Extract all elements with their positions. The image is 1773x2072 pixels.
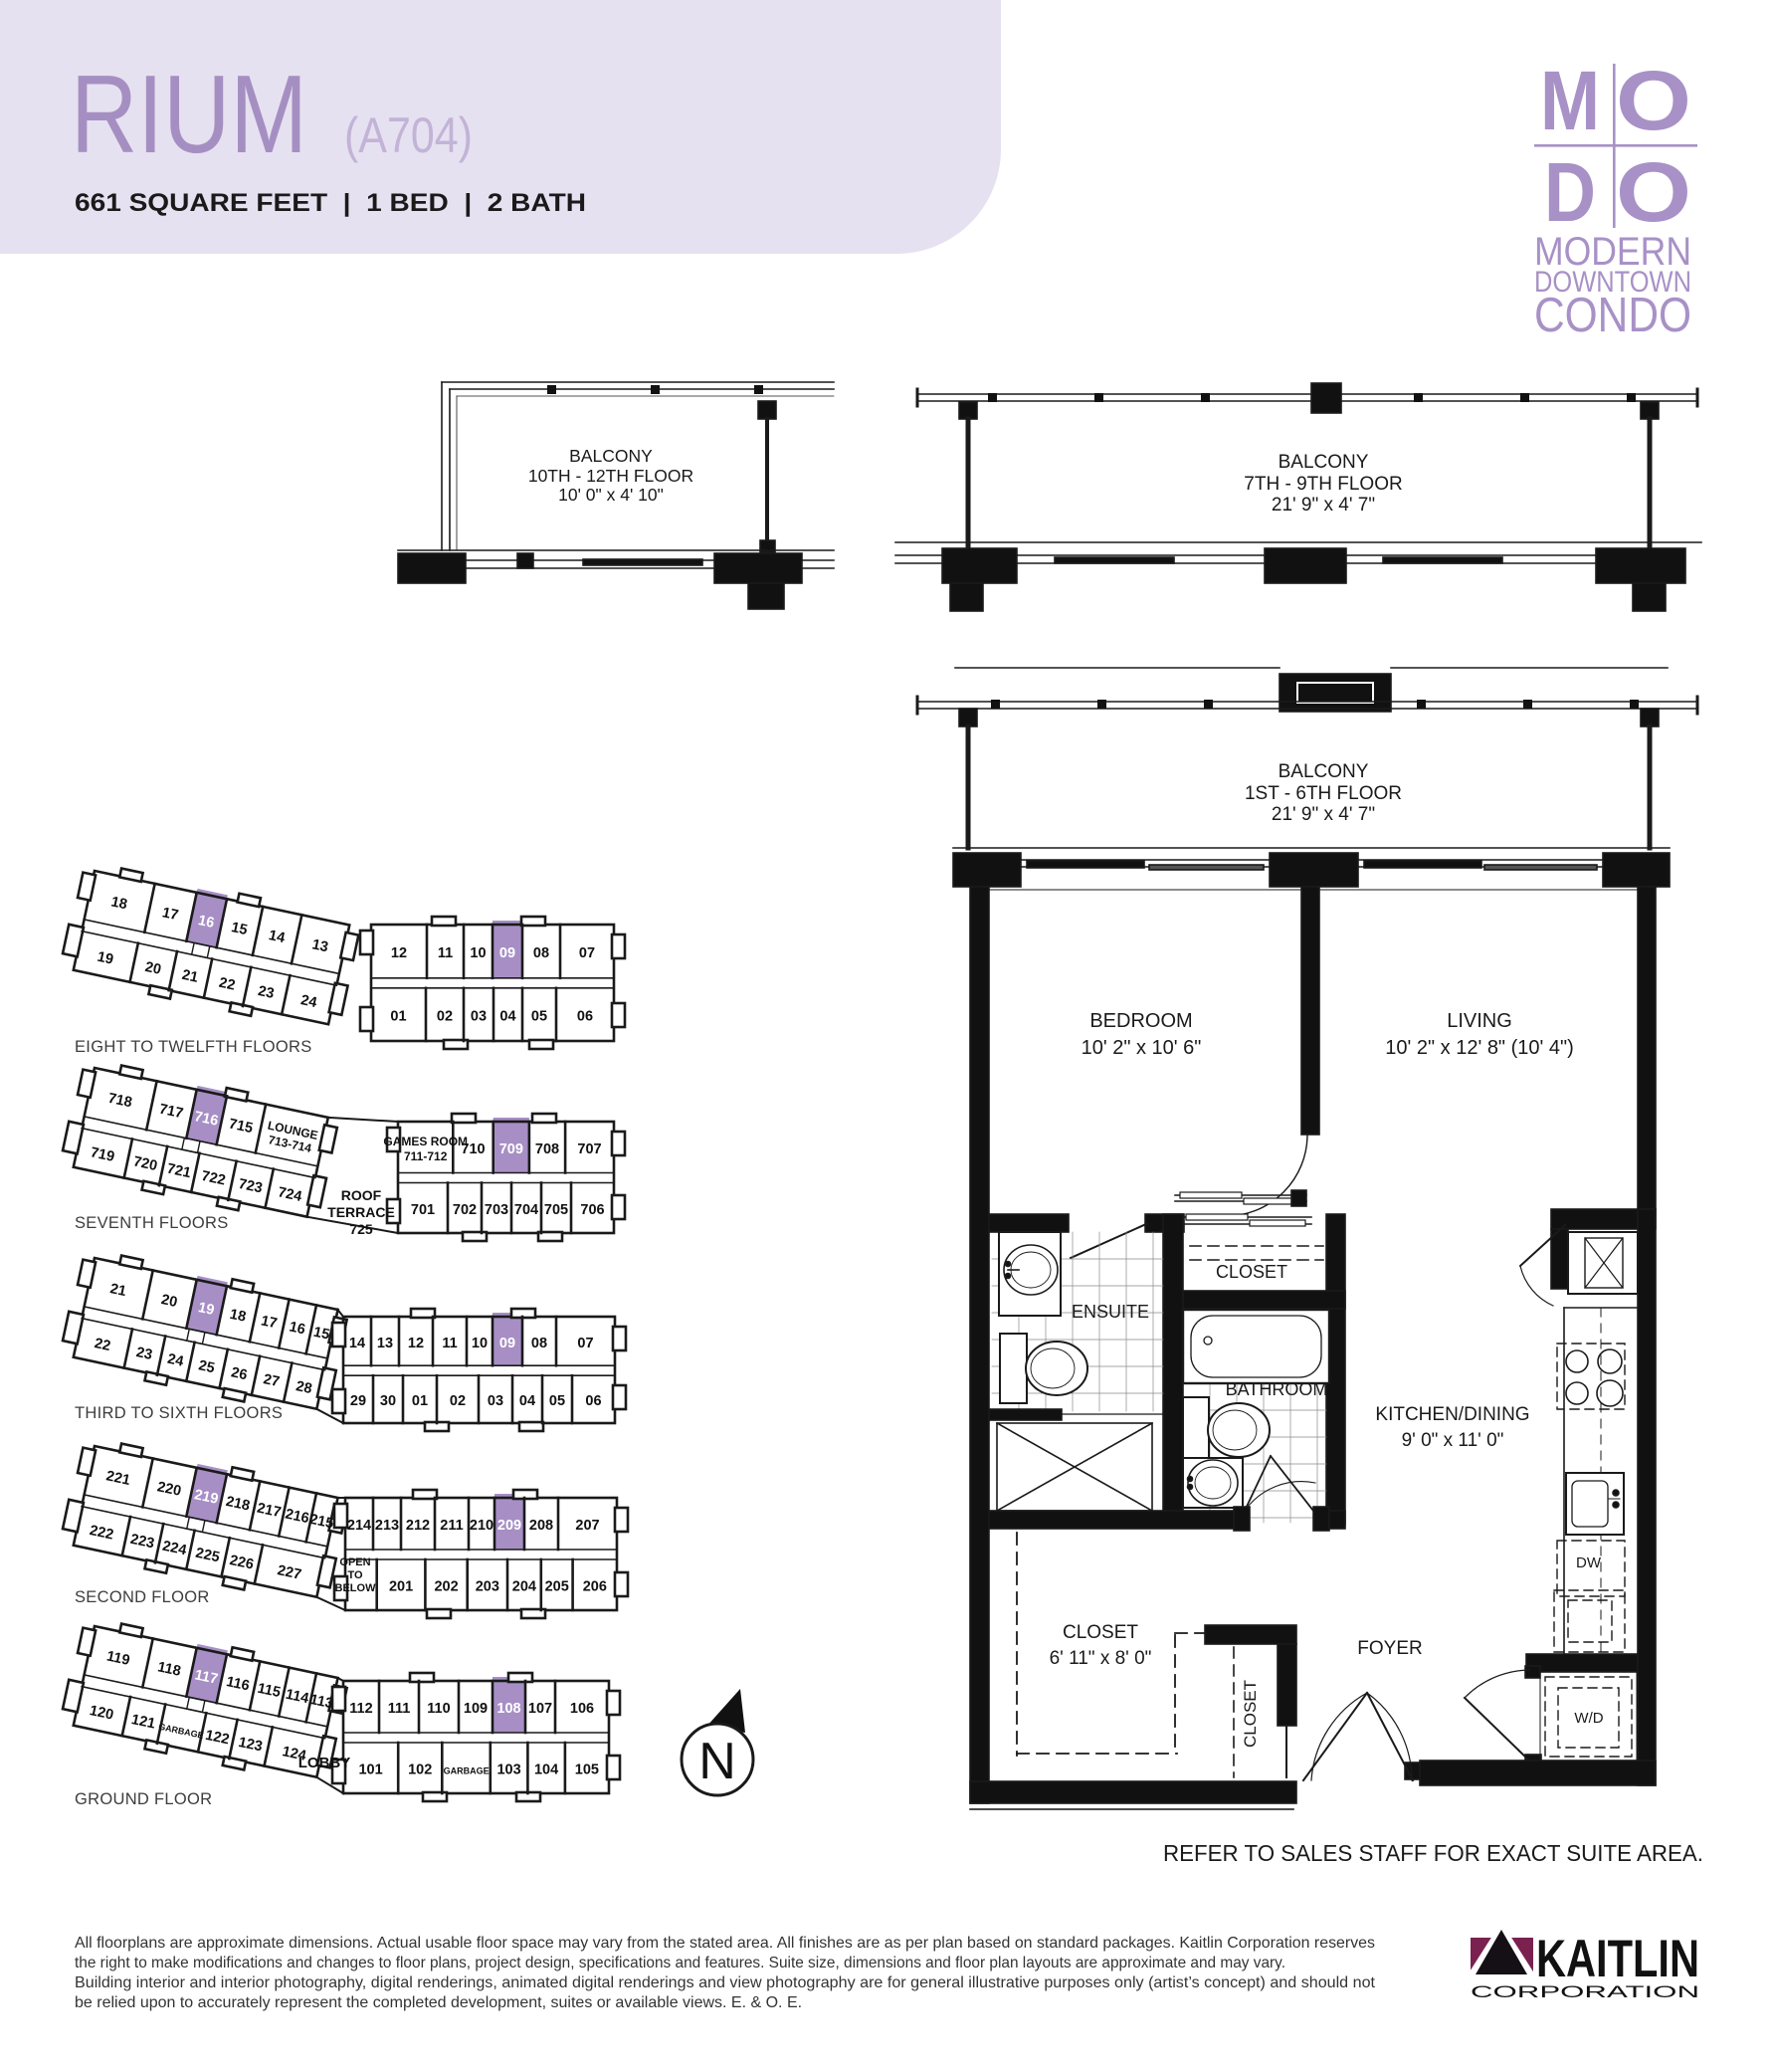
svg-text:722: 722 — [200, 1168, 227, 1189]
svg-text:213: 213 — [375, 1518, 399, 1534]
svg-text:661 SQUARE FEET | 1 BED |: 661 SQUARE FEET | 1 BED | 2 BATH — [75, 189, 586, 217]
svg-text:207: 207 — [575, 1518, 599, 1534]
svg-text:13: 13 — [377, 1336, 393, 1351]
svg-text:101: 101 — [358, 1762, 382, 1778]
svg-text:FOYER: FOYER — [1357, 1638, 1422, 1659]
svg-text:221: 221 — [104, 1468, 131, 1489]
svg-text:21: 21 — [108, 1281, 127, 1300]
svg-text:724: 724 — [277, 1184, 303, 1205]
svg-text:BALCONY: BALCONY — [1279, 452, 1369, 473]
svg-text:BATHROOM: BATHROOM — [1226, 1379, 1328, 1399]
svg-text:10' 2" x 12' 8" (10' 4"): 10' 2" x 12' 8" (10' 4") — [1385, 1037, 1574, 1059]
svg-text:BELOW: BELOW — [335, 1582, 377, 1594]
svg-text:206: 206 — [583, 1579, 607, 1595]
svg-text:201: 201 — [389, 1579, 413, 1595]
svg-text:210: 210 — [470, 1518, 493, 1534]
svg-text:BEDROOM: BEDROOM — [1089, 1010, 1192, 1032]
svg-text:01: 01 — [390, 1008, 406, 1024]
svg-text:704: 704 — [514, 1202, 538, 1218]
svg-text:28: 28 — [295, 1378, 313, 1397]
svg-text:W/D: W/D — [1574, 1710, 1603, 1727]
svg-text:717: 717 — [158, 1102, 185, 1123]
svg-text:27: 27 — [262, 1371, 281, 1390]
svg-text:08: 08 — [531, 1336, 547, 1351]
svg-text:12: 12 — [391, 945, 407, 961]
svg-text:220: 220 — [156, 1479, 183, 1500]
svg-text:TERRACE: TERRACE — [327, 1204, 395, 1220]
svg-text:16: 16 — [197, 913, 216, 932]
svg-text:DW: DW — [1576, 1554, 1602, 1571]
svg-text:216: 216 — [284, 1507, 310, 1528]
svg-text:725: 725 — [349, 1221, 373, 1237]
svg-text:SECOND FLOOR: SECOND FLOOR — [75, 1588, 210, 1606]
svg-text:29: 29 — [350, 1393, 366, 1409]
svg-text:05: 05 — [531, 1008, 547, 1024]
svg-text:08: 08 — [533, 945, 549, 961]
svg-text:CORPORATION: CORPORATION — [1471, 1982, 1699, 2001]
svg-text:702: 702 — [453, 1202, 477, 1218]
svg-text:RIUM: RIUM — [71, 53, 307, 176]
svg-text:202: 202 — [434, 1579, 458, 1595]
svg-text:204: 204 — [512, 1579, 536, 1595]
svg-text:04: 04 — [499, 1008, 515, 1024]
svg-text:20: 20 — [160, 1292, 179, 1311]
svg-text:23: 23 — [134, 1345, 153, 1363]
svg-text:ROOF: ROOF — [341, 1187, 382, 1203]
svg-text:10' 2" x 10' 6": 10' 2" x 10' 6" — [1082, 1037, 1202, 1059]
svg-text:EIGHT TO TWELFTH FLOORS: EIGHT TO TWELFTH FLOORS — [75, 1038, 312, 1056]
svg-text:21: 21 — [180, 967, 199, 986]
svg-text:11: 11 — [442, 1336, 457, 1351]
svg-text:217: 217 — [256, 1501, 283, 1522]
svg-text:105: 105 — [575, 1762, 599, 1778]
svg-text:OPEN: OPEN — [339, 1556, 370, 1568]
svg-text:719: 719 — [89, 1144, 115, 1165]
svg-text:M: M — [1540, 54, 1600, 147]
svg-text:218: 218 — [225, 1494, 252, 1515]
svg-text:711-712: 711-712 — [404, 1149, 448, 1163]
svg-text:17: 17 — [161, 905, 180, 924]
svg-text:10' 0" x 4' 10": 10' 0" x 4' 10" — [558, 485, 664, 505]
svg-text:LIVING: LIVING — [1447, 1010, 1512, 1032]
svg-text:22: 22 — [93, 1336, 111, 1354]
svg-text:226: 226 — [228, 1553, 255, 1573]
svg-text:O: O — [1616, 145, 1691, 239]
svg-text:KITCHEN/DINING: KITCHEN/DINING — [1375, 1404, 1529, 1425]
svg-text:26: 26 — [230, 1364, 249, 1383]
svg-text:205: 205 — [545, 1579, 569, 1595]
svg-text:209: 209 — [497, 1518, 521, 1534]
svg-text:723: 723 — [237, 1176, 264, 1197]
svg-text:18: 18 — [228, 1307, 247, 1326]
svg-text:D: D — [1544, 145, 1596, 239]
svg-text:109: 109 — [464, 1701, 488, 1717]
svg-text:113: 113 — [308, 1692, 334, 1713]
svg-text:715: 715 — [227, 1117, 254, 1138]
svg-text:03: 03 — [471, 1008, 487, 1024]
svg-text:KAITLIN: KAITLIN — [1536, 1930, 1699, 1988]
svg-text:7TH - 9TH FLOOR: 7TH - 9TH FLOOR — [1244, 474, 1402, 495]
svg-text:1ST - 6TH FLOOR: 1ST - 6TH FLOOR — [1245, 783, 1402, 804]
svg-text:103: 103 — [496, 1762, 520, 1778]
svg-text:208: 208 — [529, 1518, 553, 1534]
svg-text:703: 703 — [485, 1202, 508, 1218]
svg-text:21' 9" x 4' 7": 21' 9" x 4' 7" — [1272, 495, 1375, 516]
svg-text:17: 17 — [260, 1313, 279, 1332]
svg-text:GAMES ROOM: GAMES ROOM — [383, 1135, 468, 1148]
svg-text:214: 214 — [347, 1518, 371, 1534]
svg-text:19: 19 — [197, 1300, 216, 1319]
svg-text:07: 07 — [577, 1336, 593, 1351]
svg-text:212: 212 — [406, 1518, 430, 1534]
svg-text:09: 09 — [499, 945, 515, 961]
svg-text:04: 04 — [519, 1393, 535, 1409]
svg-text:708: 708 — [535, 1141, 559, 1157]
svg-text:SEVENTH FLOORS: SEVENTH FLOORS — [75, 1214, 229, 1232]
svg-text:112: 112 — [349, 1701, 372, 1717]
svg-text:211: 211 — [440, 1518, 463, 1534]
svg-text:102: 102 — [408, 1762, 432, 1778]
svg-text:02: 02 — [450, 1393, 466, 1409]
svg-text:15: 15 — [312, 1325, 331, 1344]
svg-text:707: 707 — [577, 1141, 601, 1157]
svg-text:225: 225 — [194, 1546, 221, 1566]
svg-text:718: 718 — [106, 1091, 133, 1112]
svg-text:6' 11" x 8' 0": 6' 11" x 8' 0" — [1050, 1648, 1152, 1669]
svg-text:114: 114 — [285, 1687, 310, 1708]
svg-text:14: 14 — [349, 1336, 365, 1351]
svg-text:11: 11 — [438, 945, 453, 961]
svg-text:123: 123 — [237, 1735, 264, 1756]
svg-text:104: 104 — [534, 1762, 558, 1778]
svg-text:224: 224 — [161, 1539, 188, 1559]
svg-text:the right to make modification: the right to make modifications and chan… — [75, 1955, 1285, 1971]
svg-text:GROUND FLOOR: GROUND FLOOR — [75, 1790, 212, 1808]
svg-text:22: 22 — [218, 975, 237, 994]
svg-text:222: 222 — [88, 1523, 114, 1544]
svg-text:710: 710 — [461, 1141, 485, 1157]
svg-text:122: 122 — [204, 1728, 231, 1749]
svg-text:10: 10 — [470, 945, 486, 961]
svg-text:09: 09 — [499, 1336, 515, 1351]
svg-text:106: 106 — [570, 1701, 594, 1717]
svg-text:(A704): (A704) — [344, 107, 473, 163]
svg-text:06: 06 — [585, 1393, 601, 1409]
svg-text:709: 709 — [499, 1141, 523, 1157]
svg-text:CLOSET: CLOSET — [1216, 1262, 1287, 1282]
svg-text:16: 16 — [288, 1319, 306, 1338]
svg-text:21' 9" x 4' 7": 21' 9" x 4' 7" — [1272, 804, 1375, 825]
svg-text:18: 18 — [109, 894, 128, 913]
svg-text:be relied upon to accurately r: be relied upon to accurately represent t… — [75, 1994, 802, 2011]
svg-text:107: 107 — [528, 1701, 552, 1717]
svg-text:GARBAGE: GARBAGE — [157, 1722, 204, 1741]
svg-text:121: 121 — [130, 1712, 157, 1733]
svg-text:111: 111 — [388, 1701, 411, 1717]
svg-text:24: 24 — [299, 992, 318, 1011]
svg-text:06: 06 — [577, 1008, 593, 1024]
svg-text:Building interior and interior: Building interior and interior photograp… — [75, 1974, 1376, 1991]
svg-text:ENSUITE: ENSUITE — [1072, 1302, 1149, 1322]
svg-text:223: 223 — [129, 1532, 156, 1553]
svg-text:23: 23 — [257, 983, 276, 1002]
svg-text:19: 19 — [96, 949, 114, 968]
svg-text:BALCONY: BALCONY — [569, 446, 653, 466]
svg-text:GARBAGE: GARBAGE — [444, 1766, 490, 1776]
svg-text:10: 10 — [472, 1336, 488, 1351]
svg-text:All floorplans are approximate: All floorplans are approximate dimension… — [75, 1935, 1375, 1952]
svg-text:705: 705 — [544, 1202, 568, 1218]
svg-text:706: 706 — [580, 1202, 604, 1218]
svg-text:O: O — [1616, 54, 1691, 147]
svg-text:24: 24 — [166, 1351, 185, 1370]
svg-text:CONDO: CONDO — [1534, 289, 1691, 342]
svg-text:20: 20 — [143, 959, 162, 978]
svg-text:03: 03 — [488, 1393, 503, 1409]
svg-text:203: 203 — [476, 1579, 499, 1595]
svg-text:13: 13 — [310, 936, 329, 955]
svg-text:120: 120 — [88, 1703, 114, 1724]
svg-text:02: 02 — [437, 1008, 453, 1024]
svg-text:THIRD TO SIXTH FLOORS: THIRD TO SIXTH FLOORS — [75, 1404, 283, 1422]
svg-text:227: 227 — [276, 1562, 302, 1583]
svg-text:9' 0" x 11' 0": 9' 0" x 11' 0" — [1402, 1430, 1504, 1451]
svg-text:LOBBY: LOBBY — [298, 1755, 351, 1771]
svg-text:721: 721 — [165, 1161, 192, 1182]
svg-text:14: 14 — [268, 928, 287, 946]
svg-text:720: 720 — [132, 1153, 159, 1174]
svg-text:N: N — [698, 1733, 736, 1790]
svg-text:119: 119 — [105, 1648, 131, 1669]
svg-text:CLOSET: CLOSET — [1063, 1622, 1138, 1643]
svg-text:118: 118 — [156, 1659, 182, 1680]
svg-text:05: 05 — [549, 1393, 565, 1409]
svg-text:01: 01 — [412, 1393, 428, 1409]
svg-text:REFER TO SALES STAFF FOR EXACT: REFER TO SALES STAFF FOR EXACT SUITE ARE… — [1163, 1840, 1703, 1866]
svg-text:CLOSET: CLOSET — [1241, 1680, 1260, 1748]
svg-text:25: 25 — [197, 1357, 216, 1376]
svg-text:110: 110 — [427, 1701, 450, 1717]
svg-text:TO: TO — [347, 1569, 363, 1581]
svg-text:108: 108 — [496, 1701, 520, 1717]
svg-text:15: 15 — [230, 920, 249, 938]
svg-text:BALCONY: BALCONY — [1279, 761, 1369, 782]
svg-text:30: 30 — [380, 1393, 396, 1409]
svg-text:10TH - 12TH FLOOR: 10TH - 12TH FLOOR — [528, 466, 693, 486]
svg-text:115: 115 — [256, 1681, 282, 1702]
svg-text:701: 701 — [411, 1202, 435, 1218]
svg-text:07: 07 — [579, 945, 595, 961]
svg-text:12: 12 — [408, 1336, 424, 1351]
svg-text:116: 116 — [225, 1674, 251, 1695]
